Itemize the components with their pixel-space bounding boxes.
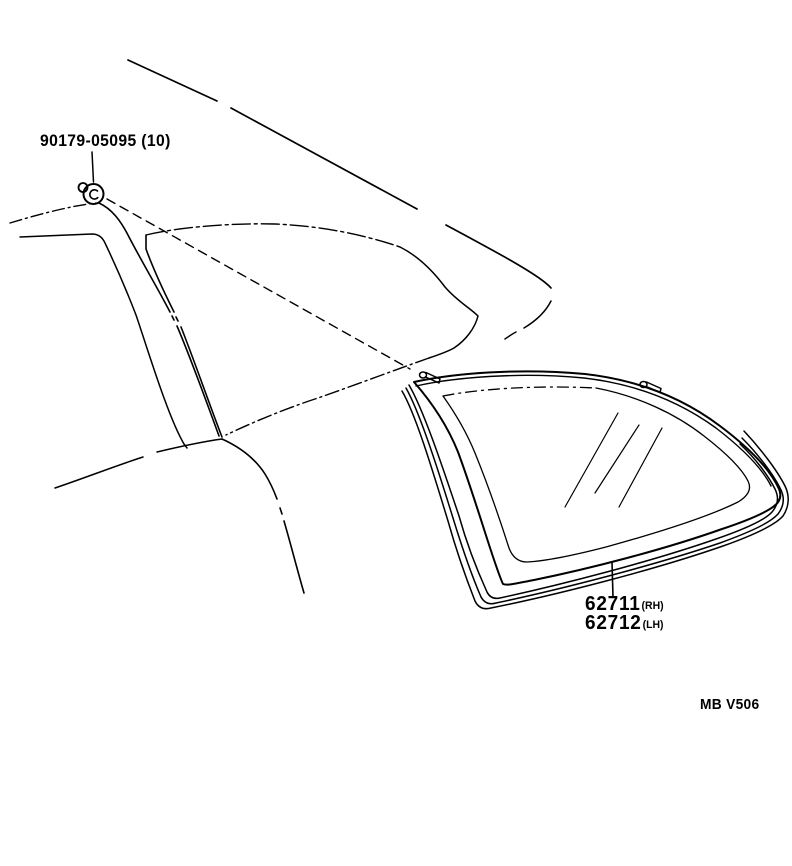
b-pillar-front-line	[99, 203, 219, 436]
alignment-dashed-line	[107, 199, 410, 369]
grommet-clip-icon	[79, 152, 104, 204]
glass-leader-line	[612, 562, 613, 597]
quarter-glass-lineart	[402, 371, 788, 608]
frit-border-dashdot	[443, 387, 596, 396]
glass-shine-line-1	[565, 413, 618, 507]
molding-line-3	[402, 391, 788, 609]
glass-side-tag-lh: (LH)	[643, 619, 664, 631]
rear-fender-line	[222, 439, 304, 593]
glass-outline	[414, 371, 780, 584]
quarter-opening-top-edge	[146, 224, 400, 247]
glass-part-label-lh: 62712(LH)	[585, 616, 664, 635]
retainer-stud-icon-front	[420, 372, 441, 383]
molding-line-2	[406, 388, 783, 604]
figure-code-label: MB V506	[700, 697, 759, 713]
glass-part-labels: 62711(RH) 62712(LH)	[585, 597, 664, 634]
c-pillar-line	[505, 301, 551, 339]
fastener-part-label: 90179-05095 (10)	[40, 132, 171, 151]
fastener-leader-line	[92, 152, 94, 182]
grommet-outer-ring	[84, 184, 104, 204]
roof-drip-line	[10, 203, 96, 223]
grommet-inner-c	[90, 190, 98, 199]
glass-part-number-lh: 62712	[585, 612, 642, 634]
parts-diagram-page: 90179-05095 (10) 62711(RH) 62712(LH) MB …	[0, 0, 792, 866]
quarter-window-front-edge	[146, 235, 222, 437]
quarter-opening-bottom-edge	[226, 358, 429, 435]
glass-side-tag-rh: (RH)	[642, 600, 664, 612]
roof-edge-line	[128, 60, 551, 288]
door-window-edge	[20, 234, 187, 448]
belt-line	[55, 439, 222, 488]
quarter-opening-rear-edge	[400, 247, 478, 358]
diagram-lineart	[0, 0, 792, 866]
glass-shine-line-3	[619, 428, 662, 507]
